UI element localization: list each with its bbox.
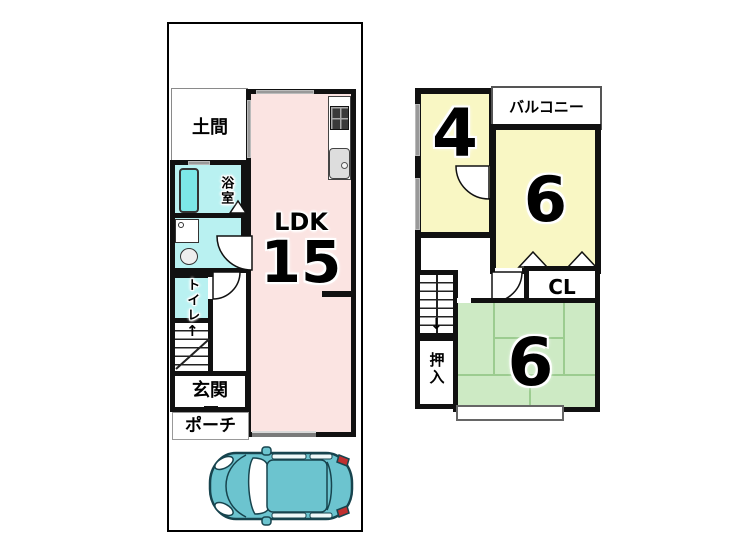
stairs-down-arrow-icon: ↓ — [430, 316, 443, 333]
room6-green-size: 6 — [481, 327, 580, 400]
bay-window — [456, 405, 564, 421]
window-doma-ldk-icon — [247, 100, 251, 158]
toilet-label: トイレ — [184, 278, 198, 323]
window-room4-lower-icon — [415, 178, 420, 230]
closet-cl-label: CL — [529, 276, 595, 298]
wall-segment-hall — [415, 238, 421, 272]
car-icon — [206, 446, 356, 526]
doma-label: 土間 — [173, 118, 247, 138]
bath-door-mark-icon — [188, 161, 210, 165]
sink-drain-icon — [341, 162, 348, 169]
stove-icon — [330, 106, 349, 130]
bath-label: 浴室 — [218, 176, 232, 206]
wash-basin-icon — [180, 248, 198, 265]
porch-label: ポーチ — [173, 417, 248, 436]
room4-size: 4 — [421, 98, 489, 171]
oshiire-label: 押入 — [428, 352, 445, 386]
room6-green-opening — [457, 298, 471, 303]
bathtub-icon — [179, 168, 199, 213]
washing-machine-tap-icon — [178, 222, 184, 228]
genkan-label: 玄関 — [173, 381, 247, 401]
washroom-door-swing-icon — [217, 236, 252, 270]
floor-plan-canvas: 土間 LDK 15 浴室 トイレ ↑ 玄関 ポーチ 4 — [0, 0, 750, 559]
balcony-label: バルコニー — [493, 99, 600, 116]
stairs-up-arrow-icon: ↑ — [186, 323, 199, 340]
sliding-door-ldk-icon — [252, 431, 316, 437]
window-room4-upper-icon — [415, 104, 420, 156]
window-ldk-top-icon — [256, 90, 314, 94]
room6-yellow-size: 6 — [496, 166, 595, 234]
toilet-door-swing-icon — [213, 272, 240, 299]
ldk-size: 15 — [251, 231, 351, 295]
